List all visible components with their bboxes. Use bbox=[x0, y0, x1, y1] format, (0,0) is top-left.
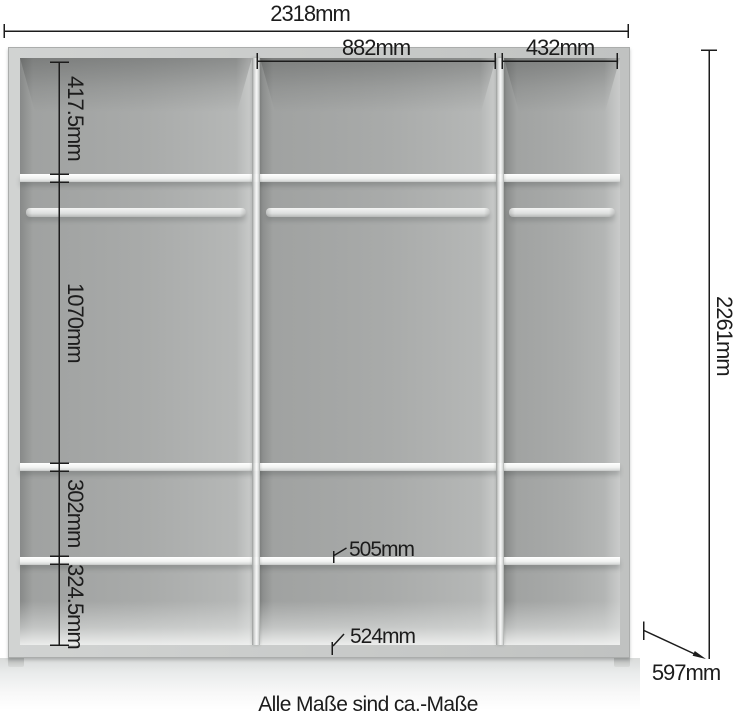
dim-depth-label: 597mm bbox=[648, 662, 724, 684]
depth-arrowhead bbox=[693, 651, 706, 659]
dim-lower-height-label: 302mm bbox=[64, 471, 86, 556]
dim-clearance-505-label: 505mm bbox=[349, 539, 414, 560]
dim-middle-width-label: 882mm bbox=[306, 37, 446, 59]
dim-total-height-label: 2261mm bbox=[713, 266, 735, 406]
approximate-dimensions-note: Alle Maße sind ca.-Maße bbox=[0, 693, 736, 717]
wardrobe-dimension-diagram: 2318mm 882mm 432mm 417.5mm 1070mm 302mm … bbox=[0, 0, 736, 718]
dim-bottom-height-label: 324.5mm bbox=[64, 564, 86, 645]
dimension-lines bbox=[0, 0, 736, 718]
dim-clearance-524-label: 524mm bbox=[350, 626, 415, 647]
dim-total-width-label: 2318mm bbox=[230, 3, 390, 25]
dim-main-height-label: 1070mm bbox=[64, 182, 86, 463]
dim-right-width-label: 432mm bbox=[490, 37, 630, 59]
dim-upper-height-label: 417.5mm bbox=[64, 62, 86, 174]
